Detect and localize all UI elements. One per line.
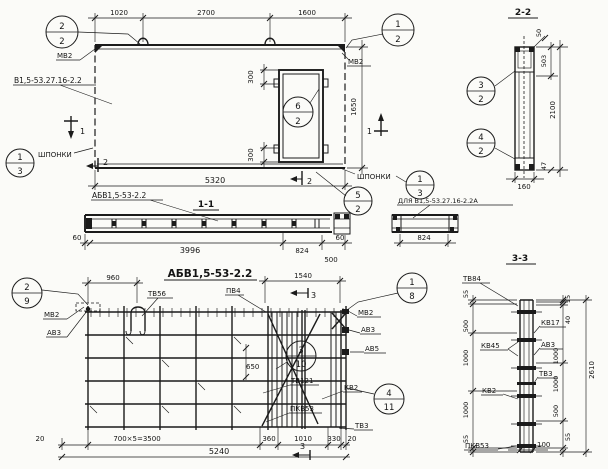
label-kv17: КВ17 [541,319,560,327]
callout-4-11-bottom: 11 [384,403,395,413]
label-keys-left: ШПОНКИ [38,151,72,159]
dim-47: 47 [540,162,548,170]
callout-1-2-top: 1 [395,20,400,30]
label-pkv53-cage: ПКВ53 [290,405,314,413]
callout-3-10-top: 3 [298,346,303,356]
dim-500: 500 [324,256,337,264]
dim-650: 650 [246,363,259,371]
dim-1540: 1540 [294,272,312,280]
callout-1-8-bottom: 8 [409,292,414,302]
callout-3-2-bottom: 2 [478,95,483,105]
drawing-canvas: 1020 2700 1600 2 2 1 2 МВ2 МВ2 В1,5-53.2… [0,0,608,469]
dim-300-bottom: 300 [247,148,255,161]
dim-5240: 5240 [209,447,229,456]
panel-elevation-view: 1020 2700 1600 2 2 1 2 МВ2 МВ2 В1,5-53.2… [6,9,434,215]
callout-4-2-top: 4 [478,133,483,143]
callout-4-2: 4 2 [467,129,515,159]
label-kv45: КВ45 [481,342,500,350]
cage-title: АБВ1,5-53-2.2 [168,268,253,280]
label-mv2-cage-left: МВ2 [44,311,59,319]
dim-1600: 1600 [298,9,316,17]
callout-keys-right-top: 1 [417,175,422,185]
callout-5-2-bottom: 2 [355,205,360,215]
section-1-1-alt: ДЛЯ В1,5-53.27.16-2.2А 824 [392,197,513,247]
callout-1-2-bottom: 2 [395,35,400,45]
label-pv4: ПВ4 [226,287,241,295]
section-3-3-title: 3-3 [512,254,528,264]
label-tv84: ТВ84 [462,275,482,283]
label-tv3-33: ТВ3 [538,370,553,378]
callout-3-10-bottom: 10 [296,360,307,370]
callout-1-8-top: 1 [409,278,414,288]
label-av3-cage-right: АВ3 [361,326,375,334]
label-av3-cage-left: АВ3 [47,329,61,337]
label-av3-33: АВ3 [541,341,555,349]
dim-2100: 2100 [549,101,557,119]
section-mark-2-right: 2 [290,171,312,186]
section-mark-2-right-label: 2 [307,177,312,186]
callout-keys-left: 1 3 [6,149,34,177]
label-mv2-cage-right: МВ2 [358,309,373,317]
dim-1650: 1650 [350,98,358,116]
section-mark-2-left: 2 [86,158,108,172]
dim-5320: 5320 [205,176,225,185]
label-kv2-cage: КВ2 [344,384,358,392]
label-mv2-left: МВ2 [57,52,72,60]
dim-2610: 2610 [588,361,596,379]
callout-keys-left-bottom: 3 [17,167,22,177]
dim-3996: 3996 [180,246,200,255]
section-3-3-view: 3-3 55 500 1000 1000 55 15 40 1000 1000 … [462,254,596,457]
dim-right-15: 15 [564,295,572,303]
dim-360: 360 [262,435,275,443]
dim-right-40: 40 [564,316,572,324]
dim-left-1000-a: 1000 [462,350,470,367]
callout-4-11-top: 4 [386,389,391,399]
section-1-1-mesh-label: АБВ1,5-53-2.2 [92,191,146,200]
section-1-1-title: 1-1 [198,200,214,210]
callout-6-2-bottom: 2 [295,117,300,127]
member-ties [511,310,542,448]
section-1-1-view: АБВ1,5-53-2.2 1-1 60 3996 824 500 60 ДЛЯ… [73,191,513,264]
label-tv121: ТВ121 [290,377,313,385]
dim-300-top: 300 [247,70,255,83]
callout-1-8: 1 8 [347,273,427,310]
dim-1020: 1020 [110,9,128,17]
dim-20-right: 20 [348,435,357,443]
cage-view: АБВ1,5-53-2.2 960 1540 3 [12,268,427,460]
label-tv3-cage: ТВ3 [354,422,369,430]
section-mark-2-left-label: 2 [103,158,108,167]
callout-2-9: 2 9 [12,278,88,308]
callout-2-9-top: 2 [24,283,29,293]
dim-503: 503 [540,55,548,67]
section-2-2-title: 2-2 [515,8,531,18]
callout-2-9-bottom: 9 [24,297,29,307]
label-av5: АВ5 [365,345,379,353]
dim-50: 50 [535,29,543,37]
callout-3-2-top: 3 [478,81,483,91]
section-mark-1-left: 1 [64,116,85,139]
callout-3-2: 3 2 [467,71,515,105]
door-opening [274,70,328,162]
dim-left-55-top: 55 [462,290,470,298]
callout-6-2: 6 2 [283,89,319,127]
section-mark-3-top-label: 3 [311,291,316,300]
callout-1-2: 1 2 [346,14,414,48]
label-mv2-right: МВ2 [348,58,363,66]
callout-2-2: 2 2 [46,16,140,48]
callout-keys-left-top: 1 [17,153,22,163]
callout-6-2-top: 6 [295,102,300,112]
dim-700x5: 700×5=3500 [113,435,160,443]
dim-left-500: 500 [462,320,470,332]
callout-5-2-top: 5 [355,191,360,201]
callout-keys-right: 1 3 [406,171,434,199]
label-tv56: ТВ56 [147,290,167,298]
section-mark-3-top: 3 [290,288,316,300]
dim-60-right: 60 [336,234,345,242]
label-keys-right: ШПОНКИ [357,173,391,181]
alt-dim-824: 824 [417,234,431,242]
dim-2700: 2700 [197,9,215,17]
section-mark-1-left-label: 1 [80,127,85,136]
dim-100: 100 [537,441,550,449]
dim-60-left: 60 [73,234,82,242]
section-mark-3-bottom-label: 3 [300,442,305,451]
dim-160: 160 [517,183,530,191]
dim-right-500: 500 [552,405,560,417]
callout-4-2-bottom: 2 [478,147,483,157]
dim-960: 960 [106,274,119,282]
dim-824: 824 [295,247,309,255]
alt-label: ДЛЯ В1,5-53.27.16-2.2А [398,197,478,205]
dim-right-1000-a: 1000 [552,348,560,365]
drawing-sheet: 1020 2700 1600 2 2 1 2 МВ2 МВ2 В1,5-53.2… [0,0,608,469]
section-2-2-view: 2-2 3 2 4 2 50 503 2100 47 1 [467,8,568,191]
dim-right-55: 55 [564,433,572,441]
callout-2-2-top: 2 [59,22,64,32]
callout-2-2-bottom: 2 [59,37,64,47]
section-mark-1-right-label: 1 [367,127,372,136]
dim-330: 330 [327,435,340,443]
label-kv2-33: КВ2 [482,387,496,395]
dim-left-1000-b: 1000 [462,402,470,419]
section-mark-1-right: 1 [367,113,388,136]
label-pkv53-33: ПКВ53 [465,442,489,450]
label-panel-mark: В1,5-53.27.16-2.2 [14,76,82,85]
dim-20-left: 20 [36,435,45,443]
